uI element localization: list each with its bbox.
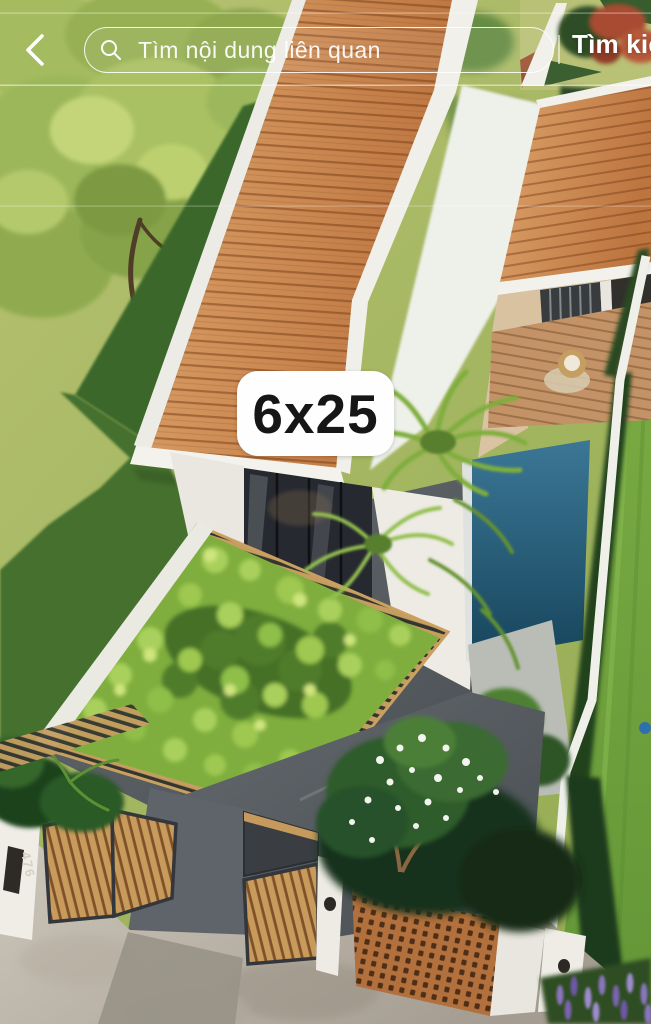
app-screen: 476	[0, 0, 651, 1024]
lamp-ornament	[558, 959, 570, 973]
gate-left-panel-b	[112, 810, 176, 916]
pool-ball	[639, 722, 651, 734]
chair-cushion	[564, 355, 580, 371]
chevron-left-icon	[16, 26, 56, 74]
search-input[interactable]	[136, 36, 539, 65]
divider	[558, 35, 560, 64]
search-submit-button[interactable]: Tìm kiếm	[572, 29, 651, 65]
search-field[interactable]	[84, 27, 554, 73]
property-render-image[interactable]: 476	[0, 0, 651, 1024]
glass-reflection-roof	[268, 490, 332, 526]
size-badge: 6x25	[237, 371, 394, 456]
gate-right-panel-b	[244, 864, 318, 964]
doorbell-ornament	[324, 897, 336, 911]
back-button[interactable]	[16, 26, 56, 74]
search-icon	[99, 38, 123, 62]
top-search-bar: Tìm kiếm	[0, 0, 651, 85]
size-badge-label: 6x25	[252, 382, 378, 446]
